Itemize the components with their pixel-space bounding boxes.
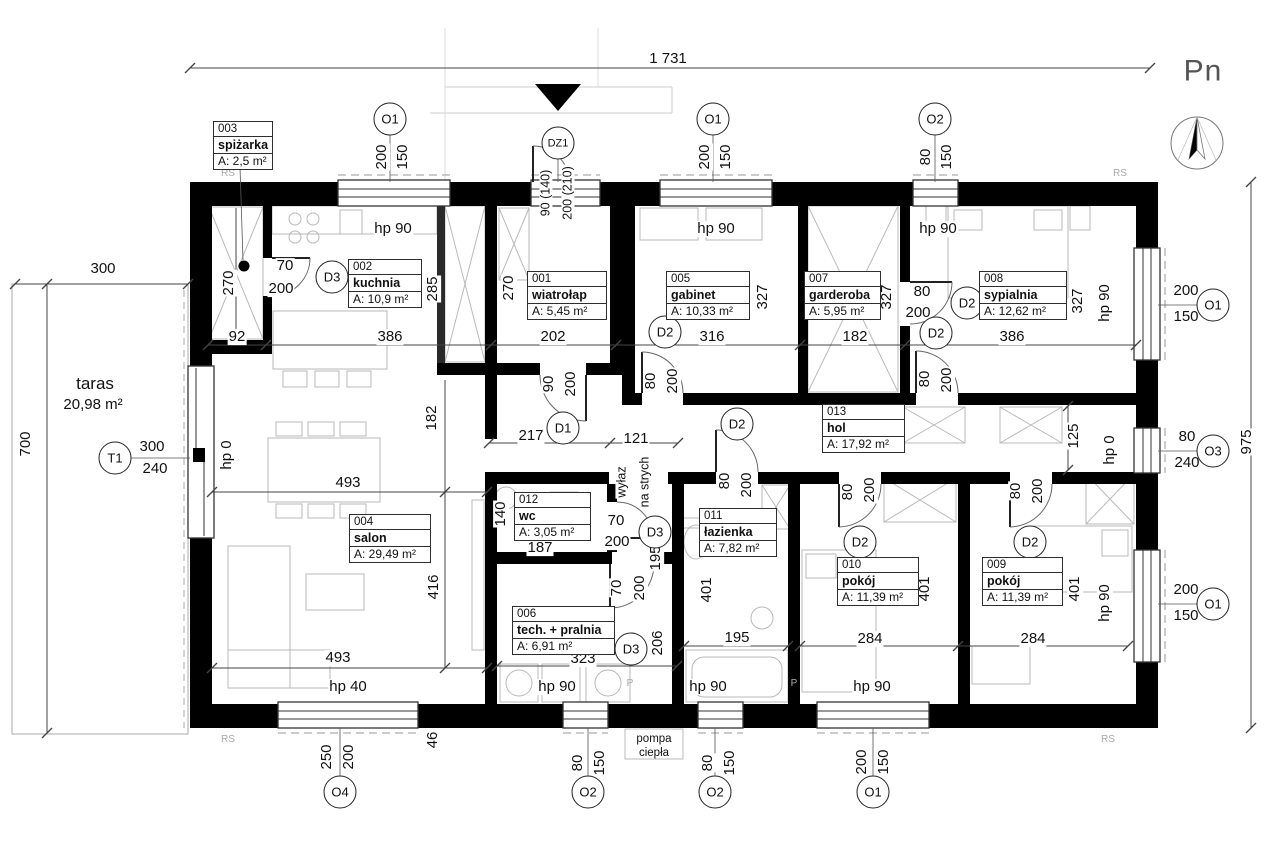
dim-label: 1 731 [648,51,688,67]
room-num: 006 [513,607,614,622]
room-num: 007 [805,272,880,287]
room-label-005: 005gabinetA: 10,33 m² [666,271,750,320]
wall-segment [622,206,635,405]
marker-d2: D2 [920,317,953,350]
room-num: 012 [515,493,590,508]
room-name: pokój [838,573,918,590]
dim-label: 240 [141,461,168,477]
room-label-010: 010pokójA: 11,39 m² [837,557,919,606]
entrance-arrow [535,84,581,111]
dim-label: RS [1112,169,1128,180]
dim-label: pompa [635,733,672,745]
dim-label: 182 [841,329,868,345]
dim-label: 80 [913,284,932,300]
wall-segment [684,472,716,484]
dim-label: 975 [1239,428,1255,455]
dim-label: RS [220,169,236,180]
wall-segment [958,393,1136,405]
marker-o2: O2 [572,776,605,809]
dim-label: 80 [643,372,659,391]
room-name: gabinet [667,287,749,304]
room-label-006: 006tech. + pralniaA: 6,91 m² [512,606,615,655]
window [338,180,450,206]
wall-segment [497,552,612,564]
dim-label: 401 [1067,575,1083,602]
dim-label: hp 90 [696,221,736,237]
room-name: garderoba [805,287,880,304]
dim-label: 217 [517,428,544,444]
room-label-003: 003spiżarkaA: 2,5 m² [213,121,273,170]
dim-label: 80 [917,370,933,389]
dim-label: 150 [592,749,608,776]
dim-label: 284 [1019,631,1046,647]
room-area: A: 11,39 m² [983,590,1062,605]
dim-label: 80 [1008,482,1024,501]
dim-label: RS [220,735,236,746]
room-name: łazienka [700,524,776,541]
dim-label: 416 [426,573,442,600]
dim-label: 150 [722,749,738,776]
dim-label: ciepła [638,747,670,759]
room-name: salon [350,530,430,547]
marker-o1: O1 [697,103,730,136]
dim-label: 80 [570,754,586,773]
wall-segment [900,206,910,282]
room-area: A: 2,5 m² [214,154,272,169]
dim-label: hp 90 [537,679,577,695]
marker-o3: O3 [1197,435,1230,468]
window [563,702,608,728]
room-label-011: 011łazienkaA: 7,82 m² [699,508,777,557]
room-name: sypialnia [980,287,1066,304]
dim-label: 200 [739,471,755,498]
wall-segment [881,472,958,484]
dim-label: 80 [918,148,934,167]
window [278,702,418,728]
dim-label: 200 [862,476,878,503]
room-name: pokój [983,573,1062,590]
room-name: tech. + pralnia [513,622,614,639]
dim-label: 284 [856,631,883,647]
room-area: A: 6,91 m² [513,639,614,654]
dim-label: 493 [334,475,361,491]
window [698,702,743,728]
marker-d3: D3 [639,516,672,549]
dim-label: P [626,679,635,690]
dim-label: 200 [563,370,579,397]
dim-label: 125 [1066,422,1082,449]
dim-label: 200 [1172,283,1199,299]
room-area: A: 3,05 m² [515,525,590,540]
wall-segment [485,363,497,439]
dim-label: 80 [700,754,716,773]
marker-o2: O2 [699,776,732,809]
dim-label: RS [1100,735,1116,746]
room-name: wiatrołap [528,287,606,304]
dim-label: hp 90 [918,221,958,237]
north-label: Pn [1183,55,1224,87]
room-area: A: 5,45 m² [528,304,606,319]
wall-segment [958,484,970,704]
dim-label: 90 [541,375,557,394]
dim-label: 70 [276,258,295,274]
dim-label: taras [75,375,115,393]
dim-label: 202 [539,329,566,345]
wall-segment [910,393,916,405]
dim-label: 80 [1178,429,1197,445]
window [817,702,929,728]
dim-label: 200 [603,534,630,550]
dim-label: 195 [648,544,664,571]
room-num: 004 [350,515,430,530]
wall-segment [668,472,684,484]
dim-label: 121 [622,431,649,447]
window [1134,428,1160,473]
dim-label: 150 [939,143,955,170]
dim-label: 386 [998,329,1025,345]
wall-segment [683,393,798,405]
room-num: 013 [823,405,904,420]
dim-label: hp 0 [1102,434,1118,465]
window [660,180,772,206]
marker-o1: O1 [1197,588,1230,621]
marker-o1: O1 [857,776,890,809]
window [913,180,958,206]
dim-label: 270 [501,274,517,301]
dim-label: hp 90 [1097,283,1113,323]
dim-label: 200 [632,574,648,601]
room-label-001: 001wiatrołapA: 5,45 m² [527,271,607,320]
marker-o1: O1 [374,103,407,136]
room-name: wc [515,508,590,525]
room-label-002: 002kuchniaA: 10,9 m² [348,259,422,308]
wall-segment [672,484,684,704]
plan-drawing [0,0,1280,847]
room-label-007: 007garderobaA: 5,95 m² [804,271,881,320]
marker-d1: D1 [547,412,580,445]
room-area: A: 11,39 m² [838,590,918,605]
dim-label: hp 90 [373,221,413,237]
wall-segment [800,472,839,484]
room-label-004: 004salonA: 29,49 m² [349,514,431,563]
dim-label: 200 [1172,582,1199,598]
dim-label: 200 [665,367,681,394]
room-num: 008 [980,272,1066,287]
dim-label: 206 [650,629,666,656]
marker-dz1: DZ1 [542,127,575,160]
dim-label: 70 [607,513,626,529]
dim-label: 200 [341,743,357,770]
room-num: 002 [349,260,421,275]
room-area: A: 29,49 m² [350,547,430,562]
dim-label: wyłaz [615,465,628,498]
room-num: 011 [700,509,776,524]
dim-label: 200 [939,366,955,393]
dim-label: 401 [917,575,933,602]
room-label-009: 009pokójA: 11,39 m² [982,557,1063,606]
dim-label: 195 [723,630,750,646]
north-compass-icon [1171,117,1223,169]
room-num: 003 [214,122,272,137]
marker-d3: D3 [615,633,648,666]
wall-segment [635,393,642,405]
dim-label: 140 [493,500,509,527]
dim-label: hp 0 [219,439,235,470]
dim-label: hp 40 [328,679,368,695]
marker-o1: O1 [1197,289,1230,322]
dim-label: 386 [376,329,403,345]
marker-d2: D2 [721,408,754,441]
room-name: hol [823,420,904,437]
window [1134,550,1160,662]
marker-d2: D2 [649,316,682,349]
wall-segment [958,472,1010,484]
room-num: 010 [838,558,918,573]
room-label-013: 013holA: 17,92 m² [822,404,905,453]
dim-label: 20,98 m² [62,397,123,413]
dim-label: 150 [1172,309,1199,325]
wall-segment [788,484,800,704]
dim-label: 150 [718,143,734,170]
room-area: A: 10,9 m² [349,292,421,307]
dim-label: 200 [267,281,294,297]
dim-label: 250 [319,743,335,770]
room-area: A: 5,95 m² [805,304,880,319]
marker-o4: O4 [324,776,357,809]
room-area: A: 10,33 m² [667,304,749,319]
dim-label: 240 [1173,455,1200,471]
dim-label: 327 [755,283,771,310]
room-num: 001 [528,272,606,287]
dim-label: 316 [698,329,725,345]
dim-label: 270 [221,269,237,296]
dim-label: 92 [228,329,247,345]
dim-label: 150 [876,748,892,775]
dim-label: 80 [840,483,856,502]
room-label-008: 008sypialniaA: 12,62 m² [979,271,1067,320]
marker-d2: D2 [1014,526,1047,559]
dim-label: 70 [609,579,625,598]
dim-label: 285 [425,275,441,302]
dim-label: na strych [638,456,651,509]
dim-label: 700 [18,430,34,457]
column-dot [239,261,250,272]
dim-label: 46 [425,731,441,750]
dim-label: 90 (140) [539,169,552,218]
dim-label: 200 (210) [561,165,574,221]
dim-label: P [790,679,799,690]
wall-segment [263,206,272,258]
floor-plan-page: 1 731Pn300taras20,98 m²30024070200923862… [0,0,1280,847]
room-num: 009 [983,558,1062,573]
dim-label: 300 [138,439,165,455]
dim-label: 150 [1172,608,1199,624]
marker-d2: D2 [844,526,877,559]
room-area: A: 17,92 m² [823,437,904,452]
wall-segment [497,363,540,375]
dim-label: 200 [1030,477,1046,504]
dim-label: hp 90 [688,679,728,695]
room-name: kuchnia [349,275,421,292]
dim-label: 200 [374,143,390,170]
wall-segment [497,472,609,484]
wall-segment [758,472,800,484]
dim-label: 200 [854,748,870,775]
dim-label: 187 [526,540,553,556]
wall-segment [263,296,272,344]
marker-t1: T1 [99,442,132,475]
room-name: spiżarka [214,137,272,154]
dim-label: 182 [424,404,440,431]
dim-label: 493 [324,650,351,666]
dim-label: hp 90 [1097,583,1113,623]
wall-segment [900,326,910,405]
dim-label: 401 [699,576,715,603]
room-label-012: 012wcA: 3,05 m² [514,492,591,541]
dim-label: 200 [697,143,713,170]
dim-label: 327 [879,283,895,310]
marker-d3: D3 [316,261,349,294]
marker-o2: O2 [919,103,952,136]
dim-label: 300 [89,261,116,277]
room-area: A: 12,62 m² [980,304,1066,319]
room-num: 005 [667,272,749,287]
dim-label: 150 [395,143,411,170]
dim-label: 327 [1070,287,1086,314]
dim-label: 80 [717,472,733,491]
room-area: A: 7,82 m² [700,541,776,556]
dim-label: hp 90 [852,679,892,695]
